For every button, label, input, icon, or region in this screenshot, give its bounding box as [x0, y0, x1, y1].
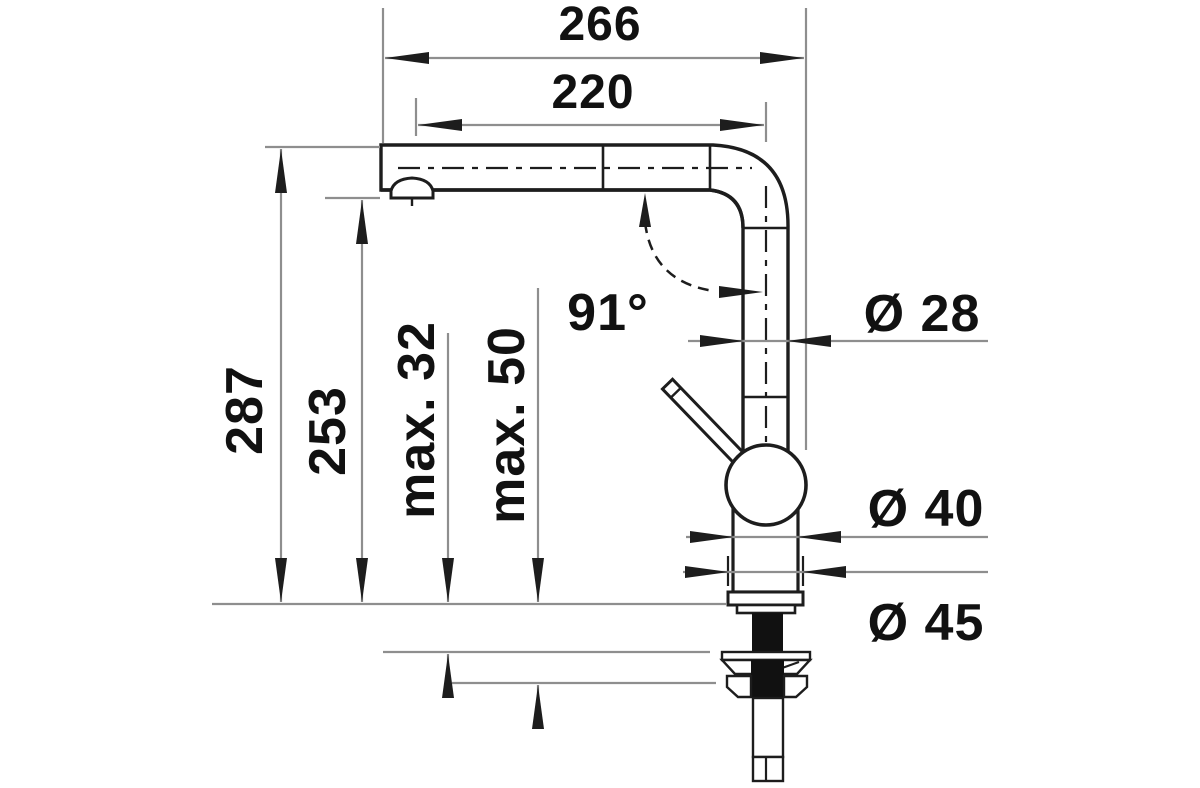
arrow-max50-down	[532, 558, 544, 602]
arrow-287-top	[275, 149, 287, 193]
arrow-dia28-left	[700, 335, 744, 347]
spout-inner-line	[381, 190, 743, 228]
angle-arc	[645, 222, 714, 291]
arrow-max50-up	[532, 685, 544, 729]
label-max-thickness-counter: max. 32	[388, 321, 446, 519]
arrow-266-left	[385, 52, 429, 64]
label-body-diameter: Ø 40	[868, 480, 985, 538]
lock-nut-right-lug	[784, 676, 807, 697]
faucet-dimension-diagram: 266 220 287 253 max. 32 max. 50 91° Ø 28…	[0, 0, 1200, 788]
aerator-outlet	[391, 178, 433, 198]
arrow-dia40-right	[797, 531, 841, 543]
label-base-diameter: Ø 45	[868, 594, 985, 652]
shank-upper	[752, 613, 783, 652]
lever-handle	[662, 379, 747, 466]
label-spout-angle: 91°	[567, 284, 649, 342]
arrow-253-bottom	[356, 558, 368, 602]
shank-threaded-dark	[751, 660, 784, 698]
ball-joint	[726, 445, 806, 525]
arrow-max32-down	[442, 558, 454, 602]
arrow-220-left	[418, 119, 462, 131]
arrow-dia45-right	[802, 566, 846, 578]
arrow-max32-up	[442, 654, 454, 698]
label-pipe-diameter: Ø 28	[864, 285, 981, 343]
arrow-dia28-right	[787, 335, 831, 347]
shank-end	[753, 757, 783, 781]
label-overall-height: 287	[216, 365, 274, 455]
arrow-dia40-left	[690, 531, 734, 543]
arrow-angle-up	[639, 193, 651, 227]
faucet-technical-drawing-page: 266 220 287 253 max. 32 max. 50 91° Ø 28…	[0, 0, 1200, 788]
arrow-287-bottom	[275, 558, 287, 602]
arrow-253-top	[356, 200, 368, 244]
shank-tube	[753, 698, 783, 757]
arrow-266-right	[760, 52, 804, 64]
label-spout-reach: 220	[551, 66, 634, 119]
label-outlet-height: 253	[299, 386, 357, 476]
dimension-labels: 266 220 287 253 max. 32 max. 50 91° Ø 28…	[216, 0, 984, 652]
label-overall-width: 266	[558, 0, 641, 51]
angle-annotation	[645, 222, 714, 291]
arrow-220-right	[720, 119, 764, 131]
arrow-dia45-left	[685, 566, 729, 578]
lock-nut-left-lug	[727, 676, 751, 697]
base-step	[737, 605, 795, 613]
base-plate	[728, 592, 803, 605]
label-max-thickness-deck: max. 50	[478, 326, 536, 524]
